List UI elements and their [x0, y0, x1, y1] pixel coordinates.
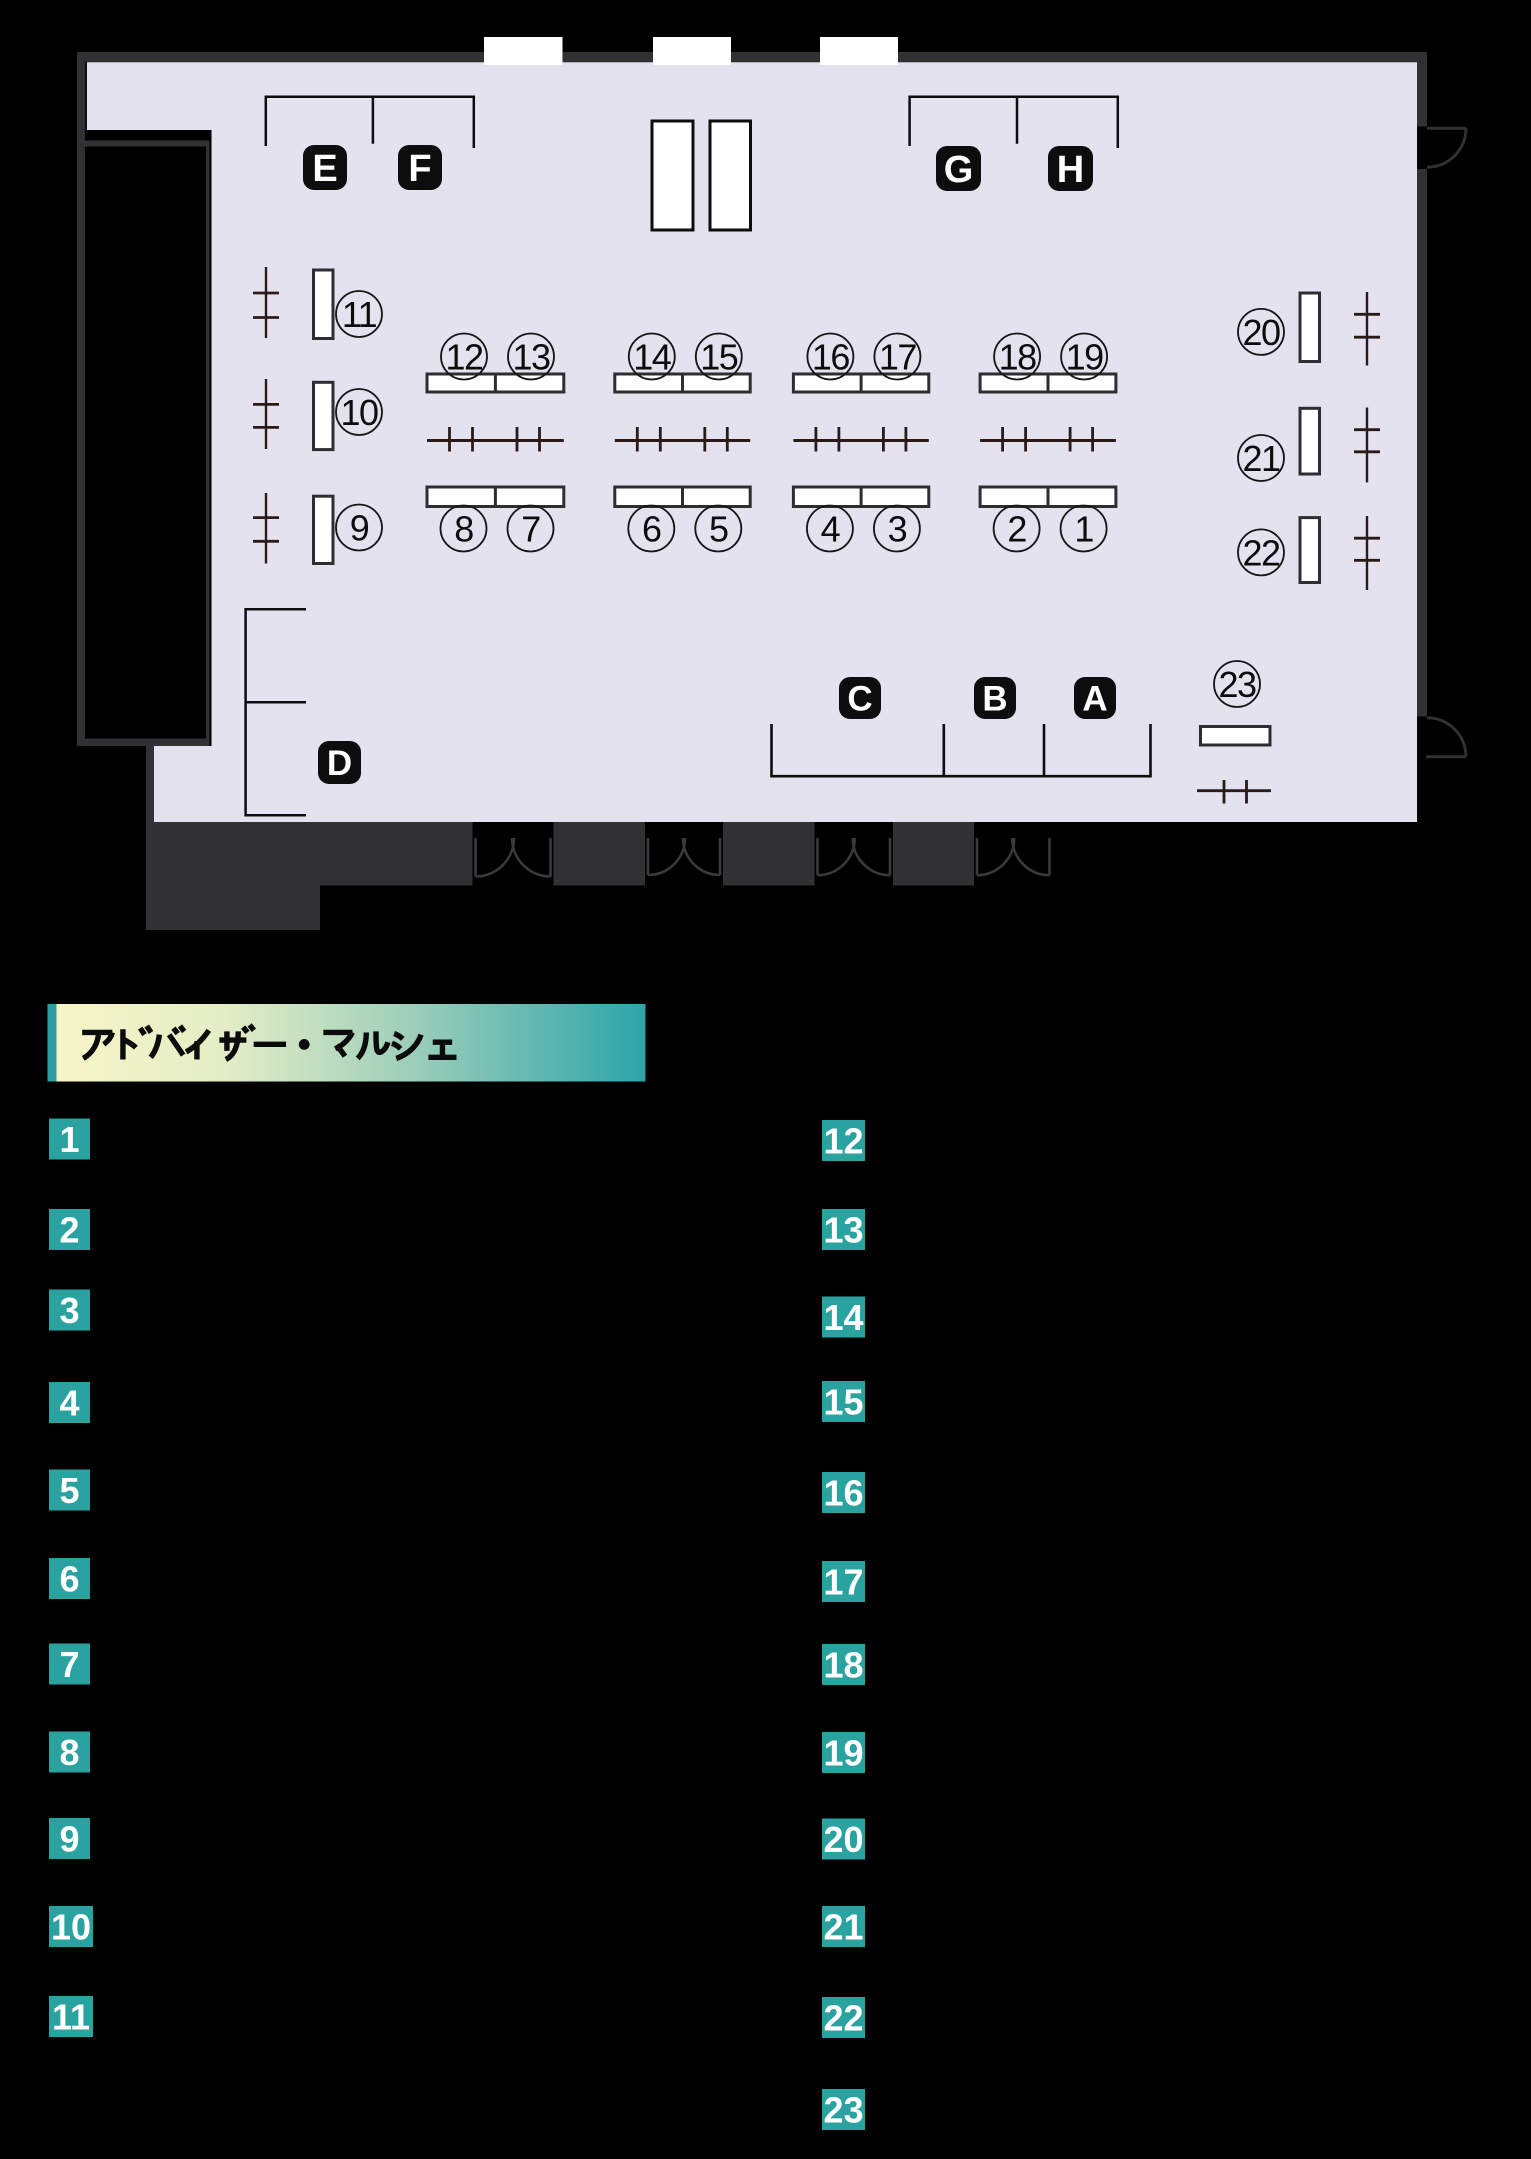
- svg-text:2: 2: [59, 1209, 79, 1250]
- svg-text:18: 18: [999, 336, 1037, 377]
- svg-text:21: 21: [1242, 438, 1280, 479]
- svg-text:17: 17: [823, 1561, 863, 1602]
- svg-text:7: 7: [521, 508, 540, 549]
- svg-text:8: 8: [454, 508, 473, 549]
- svg-text:16: 16: [812, 336, 850, 377]
- svg-text:18: 18: [823, 1644, 863, 1685]
- svg-text:10: 10: [51, 1906, 91, 1947]
- svg-text:13: 13: [823, 1209, 863, 1250]
- svg-text:5: 5: [709, 508, 728, 549]
- svg-text:9: 9: [350, 507, 369, 548]
- svg-text:15: 15: [823, 1381, 863, 1422]
- svg-text:19: 19: [823, 1732, 863, 1773]
- svg-text:16: 16: [823, 1472, 863, 1513]
- svg-text:10: 10: [340, 392, 378, 433]
- svg-text:14: 14: [633, 336, 671, 377]
- svg-text:12: 12: [823, 1120, 863, 1161]
- svg-text:H: H: [1057, 149, 1084, 191]
- svg-text:A: A: [1082, 680, 1107, 719]
- svg-text:15: 15: [700, 336, 738, 377]
- svg-text:21: 21: [823, 1906, 863, 1947]
- svg-text:13: 13: [512, 336, 550, 377]
- svg-text:22: 22: [823, 1997, 863, 2038]
- svg-text:9: 9: [59, 1818, 79, 1859]
- svg-text:4: 4: [59, 1382, 79, 1423]
- svg-text:22: 22: [1242, 532, 1280, 573]
- svg-text:1: 1: [1074, 508, 1093, 549]
- svg-text:19: 19: [1066, 336, 1104, 377]
- svg-text:6: 6: [642, 508, 661, 549]
- svg-text:23: 23: [1218, 664, 1256, 705]
- svg-text:20: 20: [823, 1819, 863, 1860]
- svg-text:14: 14: [823, 1297, 863, 1338]
- svg-text:E: E: [312, 148, 337, 190]
- svg-text:11: 11: [52, 1996, 90, 2037]
- svg-text:8: 8: [59, 1732, 79, 1773]
- svg-text:2: 2: [1007, 508, 1026, 549]
- svg-text:1: 1: [59, 1119, 79, 1160]
- svg-text:B: B: [982, 680, 1007, 719]
- svg-text:F: F: [408, 148, 431, 190]
- svg-text:20: 20: [1242, 312, 1280, 353]
- svg-text:12: 12: [445, 336, 483, 377]
- svg-text:G: G: [944, 149, 974, 191]
- svg-text:11: 11: [342, 294, 377, 335]
- svg-text:6: 6: [59, 1558, 79, 1599]
- svg-text:23: 23: [823, 2089, 863, 2130]
- svg-text:17: 17: [879, 336, 917, 377]
- svg-text:7: 7: [59, 1644, 79, 1685]
- svg-text:3: 3: [59, 1290, 79, 1331]
- svg-text:C: C: [847, 680, 872, 719]
- svg-text:5: 5: [59, 1470, 79, 1511]
- svg-text:3: 3: [888, 508, 907, 549]
- svg-text:4: 4: [821, 508, 840, 549]
- svg-text:D: D: [327, 744, 352, 783]
